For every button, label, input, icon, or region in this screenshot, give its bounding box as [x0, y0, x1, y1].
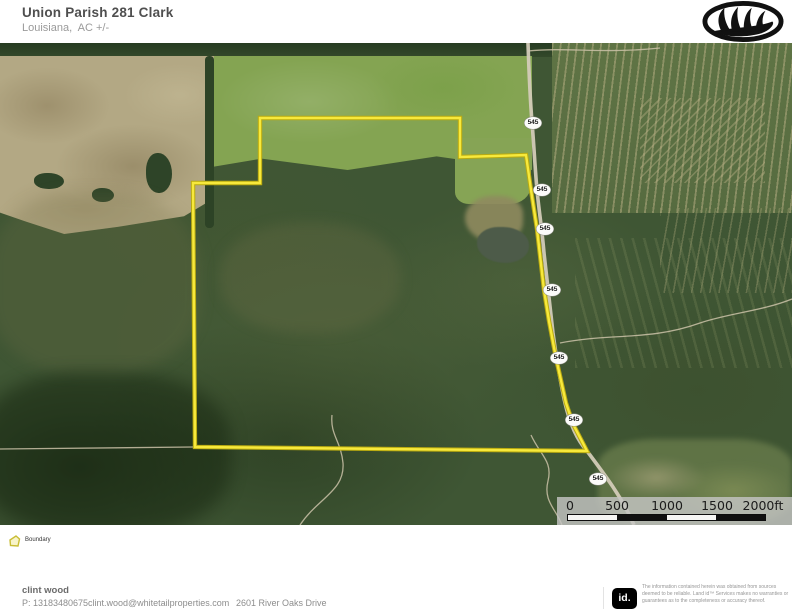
route-shield-545: 545	[544, 284, 561, 296]
route-shield-545: 545	[590, 473, 607, 485]
aerial-map: 545 545 545 545 545 545 545 0 500 1000 1…	[0, 43, 792, 525]
property-map-report: Union Parish 281 Clark Louisiana, AC +/-	[0, 0, 792, 612]
property-boundary	[193, 118, 587, 451]
report-footer: clint wood P: 13183480675 clint.wood@whi…	[0, 583, 792, 612]
route-shield-545: 545	[534, 184, 551, 196]
page-title: Union Parish 281 Clark	[22, 5, 173, 20]
agent-email: clint.wood@whitetailproperties.com	[88, 598, 229, 608]
scale-tick-label: 2000ft	[743, 498, 784, 513]
agent-address: 2601 River Oaks Drive	[236, 598, 327, 608]
route-shield-545: 545	[537, 223, 554, 235]
map-scale-bar: 0 500 1000 1500 2000ft	[557, 497, 792, 525]
scale-tick-label: 500	[605, 498, 629, 513]
scale-tick-label: 1000	[651, 498, 683, 513]
route-shield-545: 545	[566, 414, 583, 426]
report-header: Union Parish 281 Clark Louisiana, AC +/-	[0, 0, 792, 43]
footer-divider	[603, 587, 604, 609]
boundary-legend-label: Boundary	[25, 537, 51, 543]
scale-bar-segments	[567, 514, 766, 521]
scale-tick-label: 1500	[701, 498, 733, 513]
disclaimer-text: The information contained herein was obt…	[642, 584, 791, 604]
route-shield-545: 545	[525, 117, 542, 129]
whitetail-antler-logo-icon	[702, 1, 784, 42]
page-subtitle: Louisiana, AC +/-	[22, 22, 109, 34]
boundary-legend-icon	[8, 535, 21, 548]
agent-name: clint wood	[22, 585, 69, 596]
route-shield-545: 545	[551, 352, 568, 364]
map-linework	[0, 43, 792, 525]
agent-phone: P: 13183480675	[22, 598, 88, 608]
scale-tick-label: 0	[566, 498, 574, 513]
land-id-logo: id.	[612, 588, 637, 609]
map-legend: Boundary	[0, 525, 792, 563]
